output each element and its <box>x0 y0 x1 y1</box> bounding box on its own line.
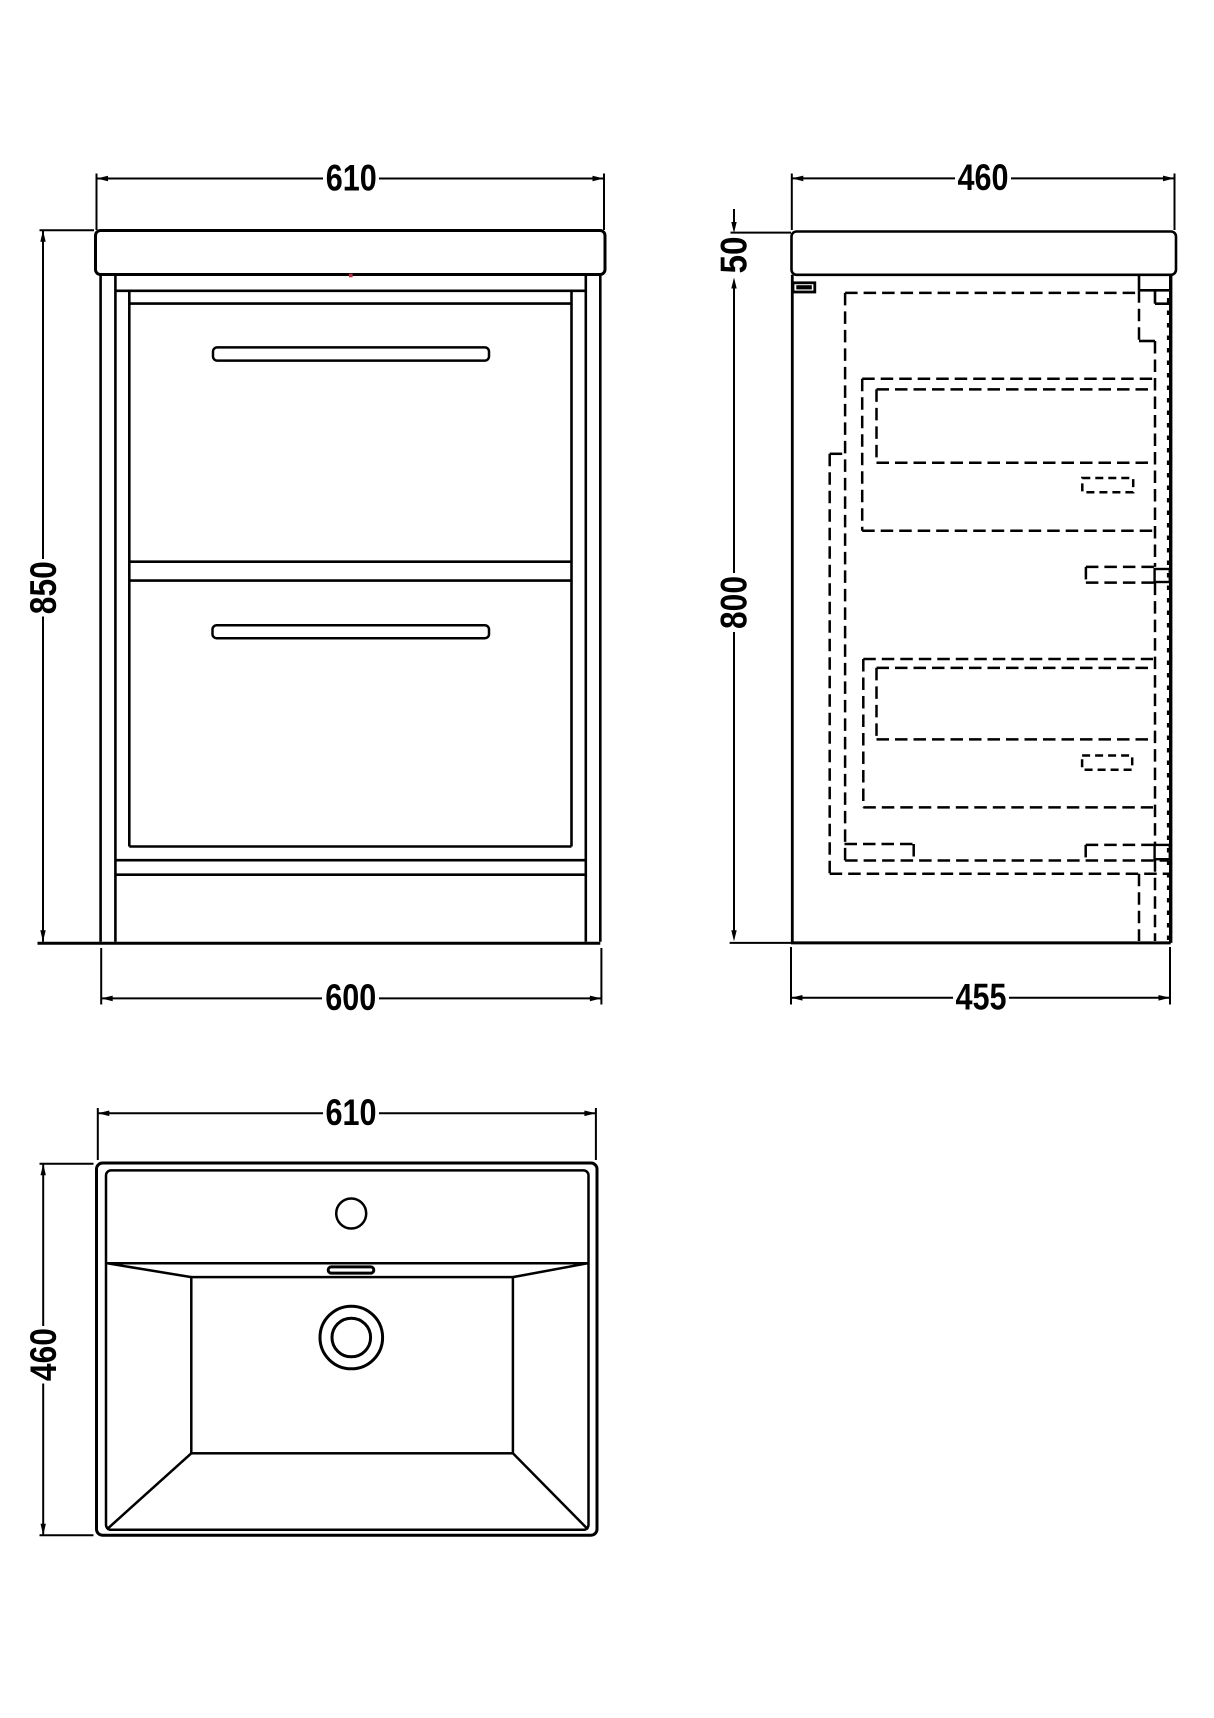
svg-text:460: 460 <box>958 157 1009 198</box>
svg-text:50: 50 <box>713 237 754 274</box>
svg-text:460: 460 <box>23 1328 64 1381</box>
svg-text:610: 610 <box>326 157 377 198</box>
svg-text:455: 455 <box>956 977 1007 1018</box>
svg-text:610: 610 <box>326 1092 377 1133</box>
svg-text:800: 800 <box>713 576 754 629</box>
svg-text:850: 850 <box>23 561 64 614</box>
svg-text:600: 600 <box>325 977 376 1018</box>
